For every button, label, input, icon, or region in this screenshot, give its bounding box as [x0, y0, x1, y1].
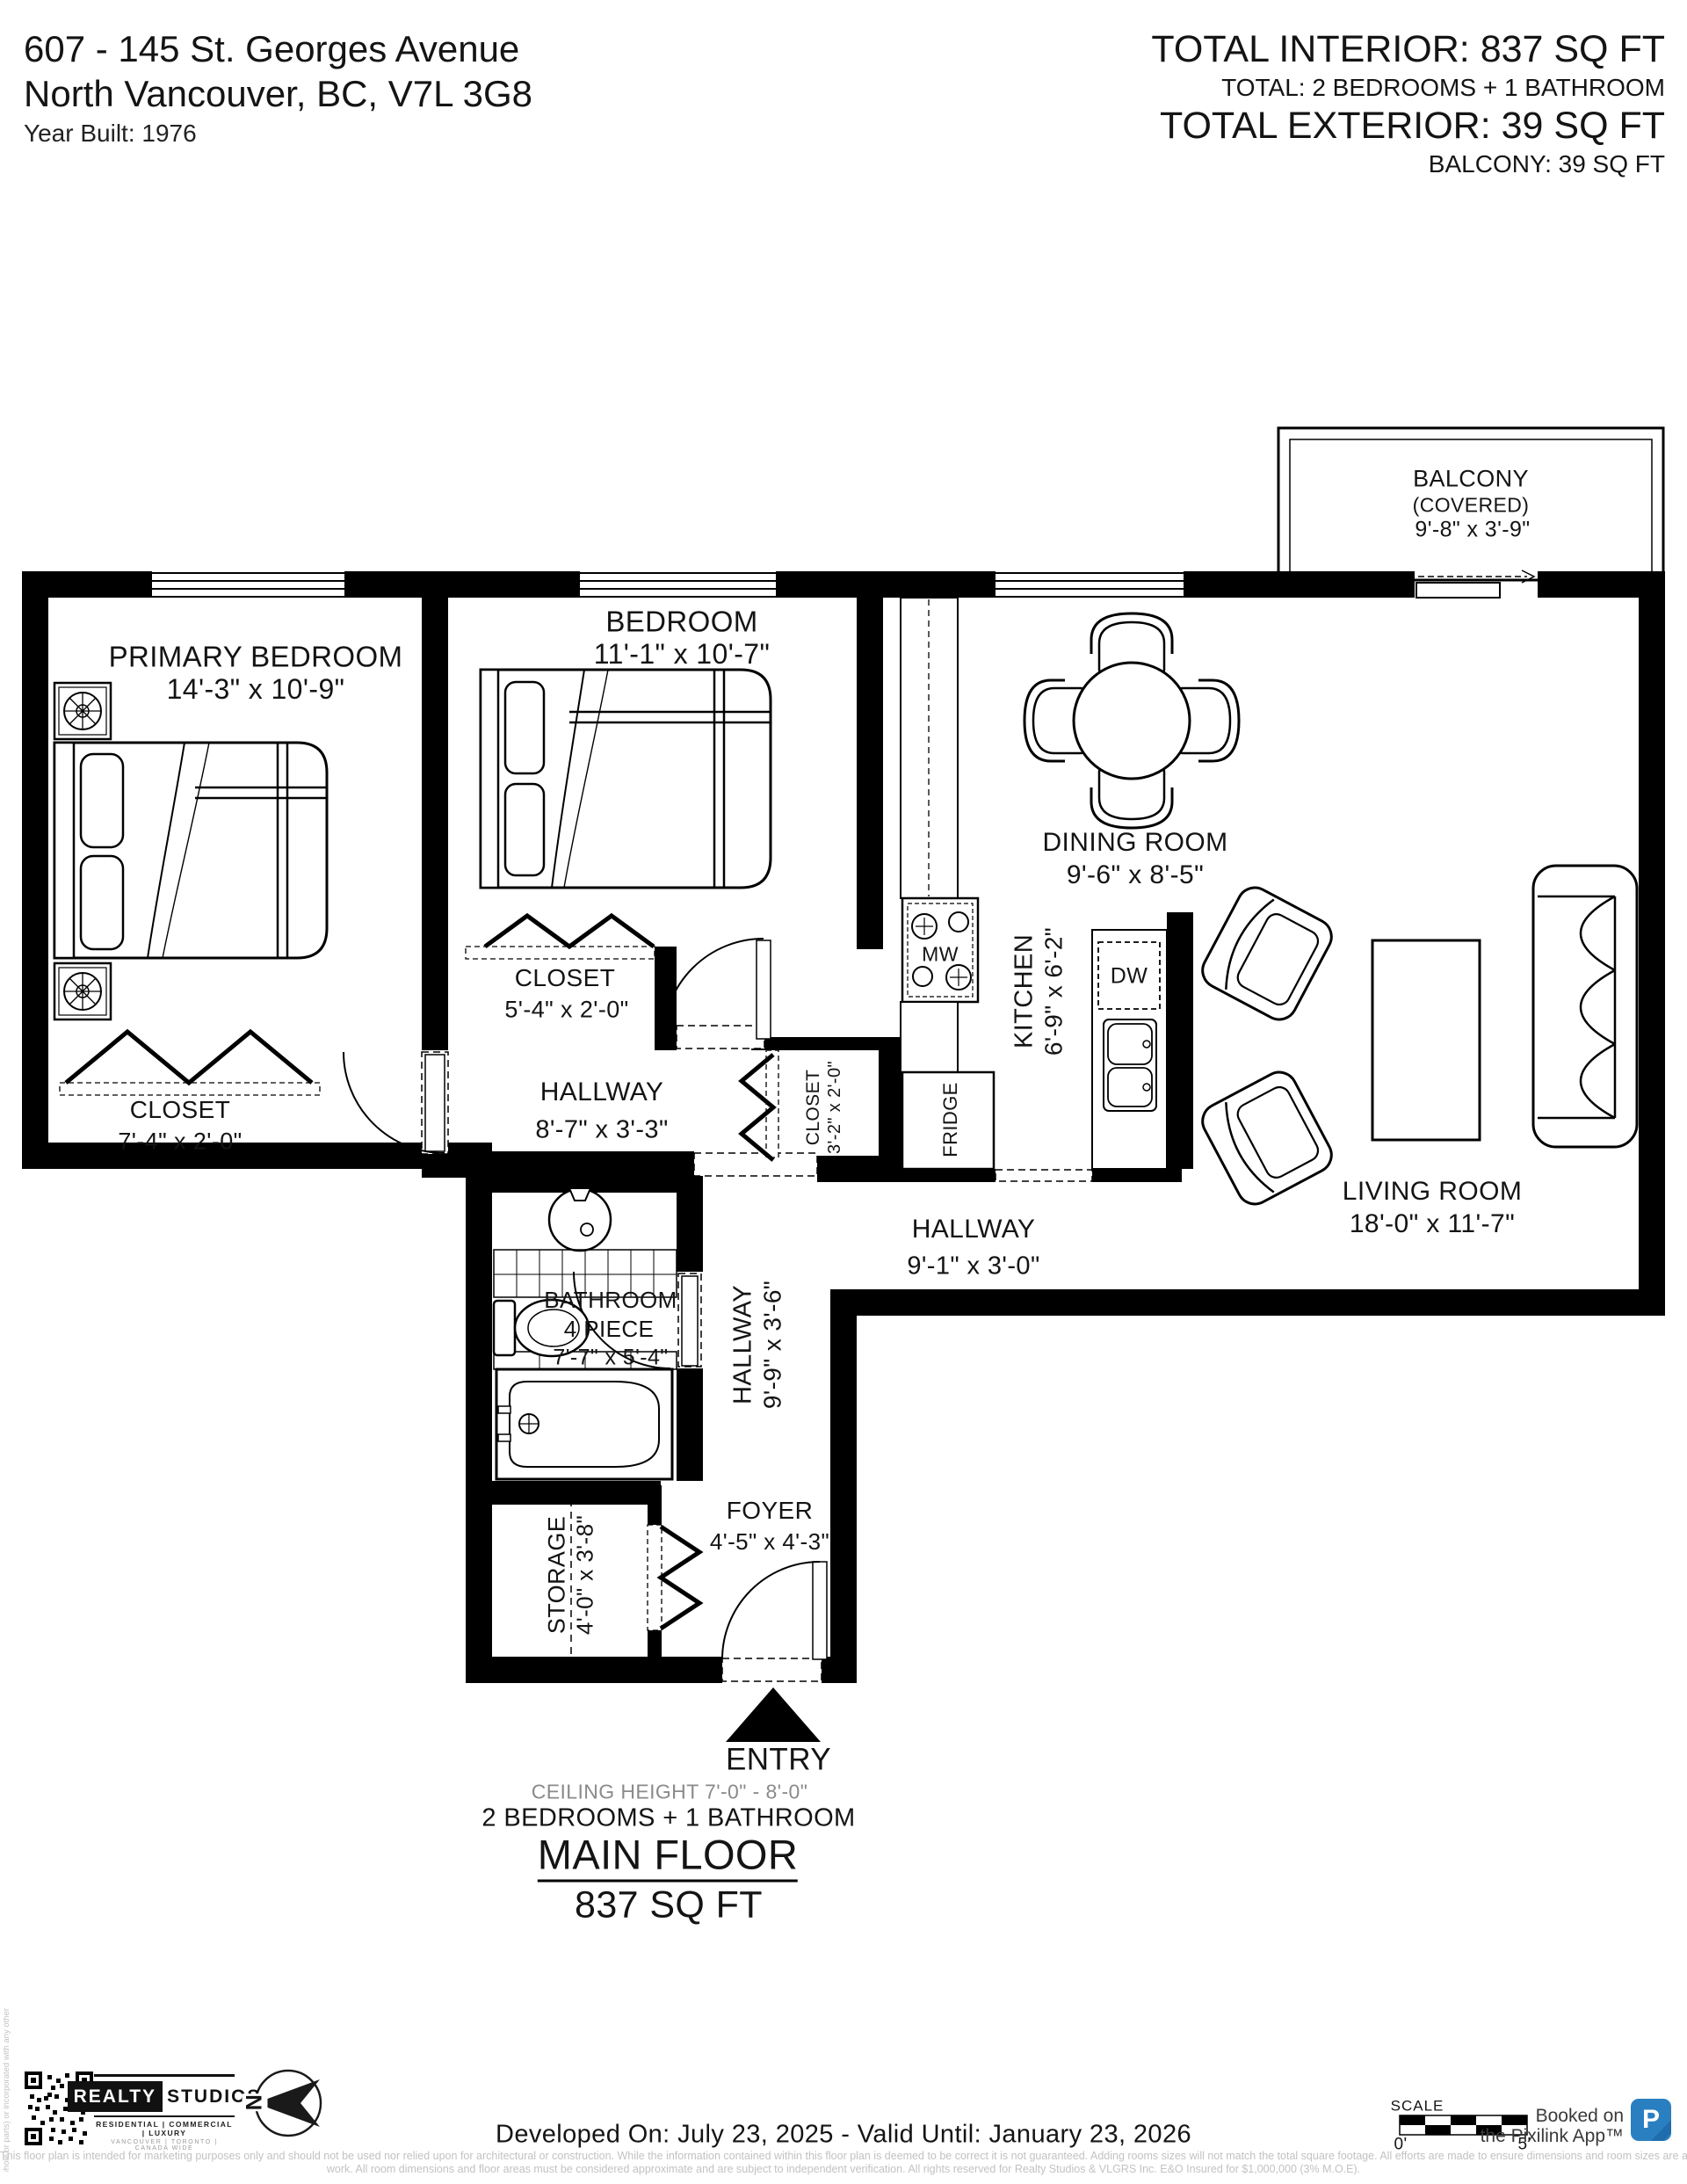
storage-label-block: STORAGE 4'-0" x 3'-8" — [544, 1515, 599, 1635]
fridge-label-block: FRIDGE — [939, 1082, 962, 1157]
dining-room-label: DINING ROOM — [1042, 830, 1227, 856]
ceiling-height: CEILING HEIGHT 7'-0" - 8'-0" — [532, 1782, 808, 1803]
bedroom-label: BEDROOM — [605, 607, 757, 636]
year-built: Year Built: 1976 — [24, 116, 532, 151]
entry-label: ENTRY — [726, 1745, 831, 1775]
header-totals-block: TOTAL INTERIOR: 837 SQ FT TOTAL: 2 BEDRO… — [1151, 28, 1665, 181]
foyer-label: FOYER — [727, 1498, 813, 1523]
foyer-dims: 4'-5" x 4'-3" — [710, 1530, 829, 1553]
nightstand-fan-icon — [54, 683, 111, 739]
bathroom-dims: 7'-7" x 5'-4" — [553, 1347, 668, 1369]
hallway-kitchen-label: HALLWAY — [912, 1216, 1036, 1243]
bathroom-note: 4 PIECE — [564, 1317, 655, 1340]
hallway-kitchen-dims: 9'-1" x 3'-0" — [907, 1254, 1039, 1280]
total-interior-detail: TOTAL: 2 BEDROOMS + 1 BATHROOM — [1151, 71, 1665, 105]
disclaimer-line1: This floor plan is intended for marketin… — [0, 2150, 1687, 2162]
kitchen-label-block: KITCHEN 6'-9" x 6'-2" — [1009, 927, 1068, 1056]
living-room-label: LIVING ROOM — [1343, 1179, 1522, 1205]
bathtub — [496, 1369, 672, 1479]
hallway-foyer-label-block: HALLWAY 9'-9" x 3'-6" — [728, 1281, 786, 1409]
hallway-foyer-label: HALLWAY — [728, 1281, 757, 1409]
booked-line1: Booked on — [1481, 2106, 1624, 2126]
header-address-block: 607 - 145 St. Georges Avenue North Vanco… — [24, 26, 532, 151]
brand-word1: REALTY — [68, 2081, 163, 2112]
scale-start: 0' — [1394, 2137, 1408, 2153]
dishwasher-label: DW — [1111, 966, 1148, 988]
primary-bedroom-dims: 14'-3" x 10'-9" — [167, 675, 345, 703]
microwave-label: MW — [922, 945, 959, 965]
living-room-dims: 18'-0" x 11'-7" — [1350, 1211, 1515, 1237]
floor-plan-page: 607 - 145 St. Georges Avenue North Vanco… — [0, 0, 1687, 2184]
bedroom-dims: 11'-1" x 10'-7" — [594, 640, 770, 668]
hallway-main-label: HALLWAY — [540, 1079, 664, 1106]
entry-arrow-icon — [726, 1687, 821, 1742]
bathroom-sink — [549, 1188, 611, 1251]
balcony-label: BALCONY — [1413, 468, 1529, 491]
logo-rule — [94, 2115, 235, 2117]
total-exterior-detail: BALCONY: 39 SQ FT — [1151, 148, 1665, 181]
closet-bedroom-dims: 5'-4" x 2'-0" — [504, 998, 628, 1022]
primary-bed — [54, 743, 327, 958]
storage-dims: 4'-0" x 3'-8" — [572, 1515, 599, 1635]
disclaimer-line2: work. All room dimensions and floor area… — [0, 2163, 1687, 2175]
balcony-note: (COVERED) — [1413, 496, 1530, 516]
hallway-foyer-dims: 9'-9" x 3'-6" — [758, 1281, 787, 1409]
booked-line2: the Pixilink App™ — [1481, 2126, 1624, 2146]
logo-rule — [94, 2074, 235, 2077]
validity-line: Developed On: July 23, 2025 - Valid Unti… — [496, 2122, 1191, 2148]
windows — [152, 573, 1184, 597]
dining-room-dims: 9'-6" x 8'-5" — [1067, 862, 1204, 889]
bed-bath-summary: 2 BEDROOMS + 1 BATHROOM — [481, 1806, 855, 1832]
kitchen-sink — [1104, 1019, 1156, 1111]
closet-hall-label: CLOSET — [803, 1061, 825, 1154]
booked-on-text: Booked on the Pixilink App™ — [1481, 2106, 1624, 2146]
total-interior: TOTAL INTERIOR: 837 SQ FT — [1151, 28, 1665, 71]
nightstand-fan-icon — [54, 963, 111, 1019]
brand-tagline: RESIDENTIAL | COMMERCIAL | LUXURY — [94, 2120, 235, 2137]
living-room-furniture — [1197, 866, 1637, 1210]
realty-studios-logo: REALTY STUDIOS RESIDENTIAL | COMMERCIAL … — [94, 2074, 235, 2151]
address-line2: North Vancouver, BC, V7L 3G8 — [24, 71, 532, 116]
sofa — [1533, 866, 1637, 1147]
closet-hall-label-block: CLOSET 3'-2" x 2'-0" — [803, 1061, 845, 1154]
scale-label: SCALE — [1391, 2099, 1444, 2114]
primary-bedroom-label: PRIMARY BEDROOM — [109, 642, 403, 671]
compass-north-label: N — [243, 2093, 268, 2111]
storage-label: STORAGE — [544, 1515, 572, 1635]
pixilink-app-letter: P — [1631, 2099, 1671, 2141]
balcony-dims: 9'-8" x 3'-9" — [1415, 519, 1530, 541]
closet-bedroom-label: CLOSET — [515, 966, 615, 990]
hallway-main-dims: 8'-7" x 3'-3" — [535, 1118, 668, 1143]
bathroom-label: BATHROOM — [544, 1288, 677, 1311]
closet-primary-dims: 7'-4" x 2'-0" — [118, 1130, 242, 1154]
kitchen-dims: 6'-9" x 6'-2" — [1039, 927, 1068, 1056]
fridge-label: FRIDGE — [939, 1082, 962, 1157]
side-disclaimer: This floor plan is intended for marketin… — [2, 2008, 18, 2172]
bedroom-bed — [481, 670, 771, 888]
coffee-table — [1372, 940, 1480, 1140]
address-line1: 607 - 145 St. Georges Avenue — [24, 26, 532, 71]
closet-hall-dims: 3'-2" x 2'-0" — [825, 1061, 846, 1154]
floor-name: MAIN FLOOR — [538, 1834, 798, 1883]
closet-primary-label: CLOSET — [130, 1098, 230, 1122]
dining-set — [1025, 613, 1239, 828]
kitchen-label: KITCHEN — [1009, 927, 1039, 1056]
floor-area: 837 SQ FT — [575, 1887, 763, 1925]
total-exterior: TOTAL EXTERIOR: 39 SQ FT — [1151, 105, 1665, 148]
